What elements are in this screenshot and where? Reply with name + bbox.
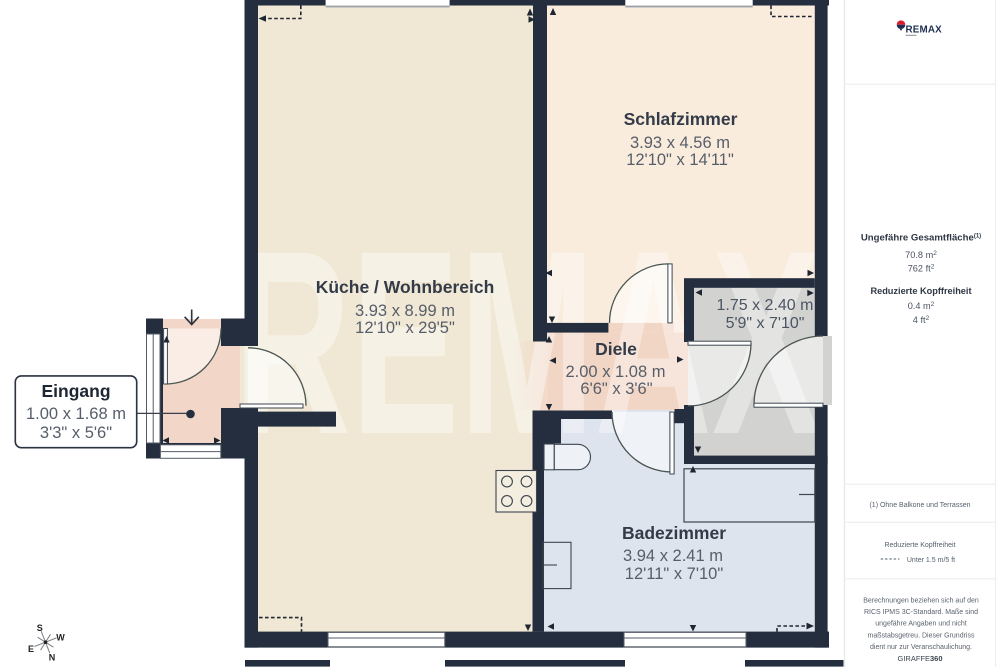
svg-text:5'9" x 7'10": 5'9" x 7'10"	[726, 315, 805, 332]
svg-text:3'3" x 5'6": 3'3" x 5'6"	[40, 424, 112, 442]
svg-text:Reduzierte Kopffreiheit: Reduzierte Kopffreiheit	[884, 542, 955, 549]
svg-text:Eingang: Eingang	[41, 381, 110, 401]
svg-text:ungefähre Angaben und nicht: ungefähre Angaben und nicht	[875, 621, 967, 628]
svg-text:1.00 x 1.68 m: 1.00 x 1.68 m	[26, 405, 126, 423]
svg-text:3.93 x 4.56 m: 3.93 x 4.56 m	[630, 134, 730, 152]
svg-text:Badezimmer: Badezimmer	[622, 523, 726, 543]
svg-text:3.94 x 2.41 m: 3.94 x 2.41 m	[623, 547, 723, 565]
svg-text:dient nur zur Veranschaulichun: dient nur zur Veranschaulichung.	[870, 644, 972, 651]
svg-text:6'6" x 3'6": 6'6" x 3'6"	[580, 380, 652, 398]
svg-text:Küche / Wohnbereich: Küche / Wohnbereich	[316, 277, 495, 297]
svg-text:1.75 x 2.40 m: 1.75 x 2.40 m	[717, 297, 814, 314]
svg-text:Berechnungen beziehen sich auf: Berechnungen beziehen sich auf den	[863, 598, 979, 605]
svg-text:Ungefähre Gesamtfläche(1): Ungefähre Gesamtfläche(1)	[861, 233, 981, 244]
svg-text:12'10" x 29'5": 12'10" x 29'5"	[355, 319, 455, 337]
svg-text:Reduzierte Kopffreiheit: Reduzierte Kopffreiheit	[870, 286, 971, 296]
svg-text:Unter 1.5 m/5 ft: Unter 1.5 m/5 ft	[907, 557, 955, 564]
svg-text:Diele: Diele	[595, 339, 637, 359]
svg-text:maßstabsgetreu. Dieser Grundri: maßstabsgetreu. Dieser Grundriss	[868, 632, 975, 639]
svg-text:S: S	[37, 623, 43, 633]
svg-text:N: N	[49, 652, 56, 662]
svg-text:0.4 m2: 0.4 m2	[908, 301, 935, 311]
svg-text:2.00 x 1.08 m: 2.00 x 1.08 m	[566, 363, 666, 381]
svg-text:W: W	[56, 633, 65, 643]
svg-text:Schlafzimmer: Schlafzimmer	[624, 109, 738, 129]
svg-text:E: E	[28, 644, 34, 654]
svg-text:70.8 m2: 70.8 m2	[905, 250, 937, 260]
svg-text:12'10" x 14'11": 12'10" x 14'11"	[626, 151, 734, 169]
svg-text:RICS IPMS 3C-Standard. Maße si: RICS IPMS 3C-Standard. Maße sind	[864, 609, 978, 616]
svg-text:REMAX: REMAX	[906, 25, 943, 36]
svg-text:762 ft2: 762 ft2	[908, 264, 935, 274]
svg-text:12'11" x 7'10": 12'11" x 7'10"	[625, 565, 724, 583]
svg-text:GIRAFFE360: GIRAFFE360	[897, 654, 942, 663]
svg-text:3.93 x 8.99 m: 3.93 x 8.99 m	[355, 302, 455, 320]
svg-text:(1) Ohne Balkone und Terrassen: (1) Ohne Balkone und Terrassen	[869, 502, 970, 509]
